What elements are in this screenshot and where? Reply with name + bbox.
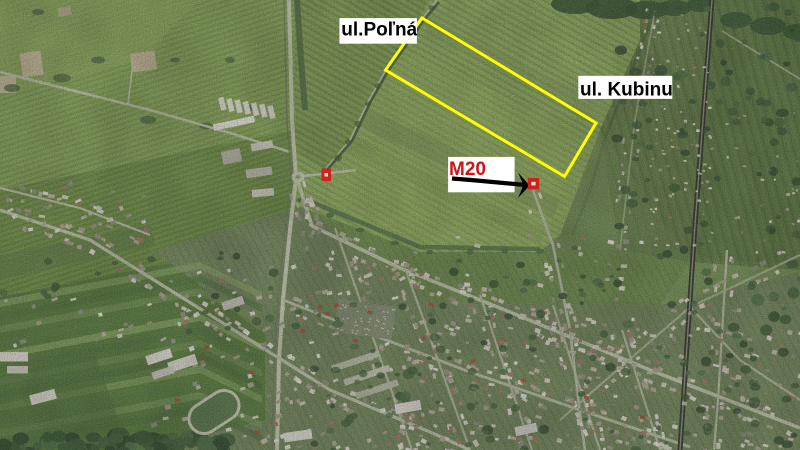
svg-text:ul.Poľná: ul.Poľná [341,20,417,41]
svg-text:ul. Kubinu: ul. Kubinu [580,79,673,100]
